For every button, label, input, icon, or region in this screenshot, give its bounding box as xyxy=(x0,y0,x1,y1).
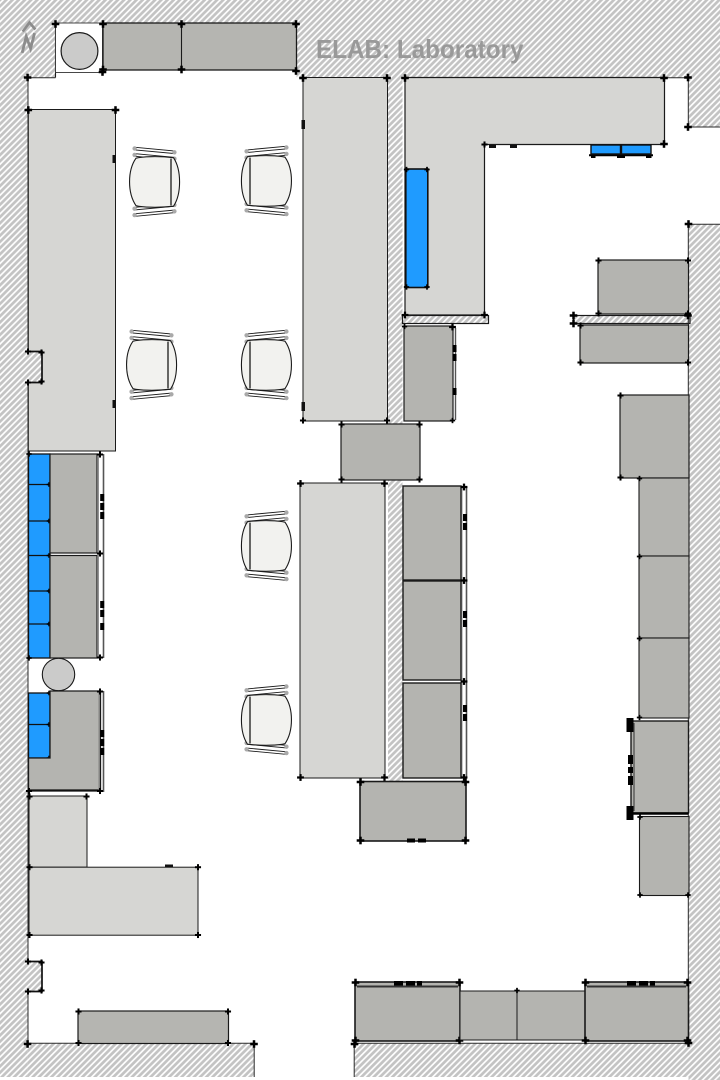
svg-text:ELAB: Laboratory: ELAB: Laboratory xyxy=(316,34,524,64)
